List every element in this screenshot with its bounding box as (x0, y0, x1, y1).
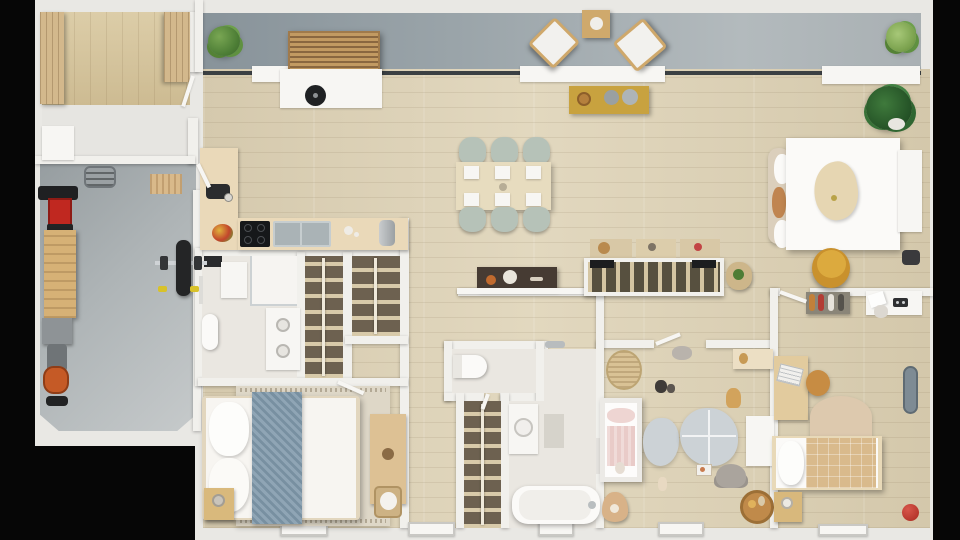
mat-decor-3 (694, 243, 702, 251)
toilet-1 (202, 314, 218, 350)
console-bowl-gray-1 (604, 90, 619, 105)
wall-closet3-left (456, 393, 464, 528)
decor-orange-ball (486, 275, 496, 285)
mat-decor-1 (598, 242, 610, 254)
master-pouf-top (817, 250, 846, 278)
lamp-2 (212, 494, 225, 507)
red-ball (902, 504, 919, 521)
garage-gray-cabinet (42, 318, 72, 344)
book-dot (700, 467, 705, 472)
master-cushion-orange (772, 187, 786, 218)
toaster (379, 220, 395, 246)
placemat-2 (495, 166, 510, 179)
mower-body (43, 366, 69, 394)
shoe-1 (809, 294, 815, 311)
shelf-toy (739, 353, 748, 364)
cushion-button (610, 504, 619, 513)
kitchen-island (280, 69, 382, 108)
crib-pillow-pink (607, 408, 635, 423)
towel-rail-1 (199, 276, 203, 304)
balcony-bench (288, 31, 380, 71)
wall-bedroom2-north (198, 378, 408, 386)
teen-pillow (778, 441, 804, 485)
window-bathroom2 (538, 522, 574, 536)
kitchen-bowl-small (344, 226, 353, 235)
placemat-6 (526, 193, 541, 206)
wall-wc-north (444, 341, 548, 349)
wall-wc-bath2 (536, 341, 544, 401)
double-sink (273, 221, 331, 247)
console-bowl-wood (577, 92, 591, 106)
toilet-2-tank (453, 355, 462, 378)
placemat-3 (526, 166, 541, 179)
decor-stick (530, 277, 543, 281)
teen-lamp (781, 497, 793, 509)
console-bowl-gray-2 (622, 89, 638, 105)
bench-foot-right (190, 286, 199, 292)
island-faucet-dot (313, 93, 318, 98)
vanity-sink (514, 418, 533, 437)
bathtub-inner (519, 490, 591, 520)
window-sill-bedroom (822, 66, 920, 84)
fruit-bowl (212, 224, 233, 242)
bench-foot-left (158, 286, 167, 292)
coffee-cup (224, 193, 233, 202)
master-plant-pot (888, 118, 905, 130)
toy-in-bowl-2 (758, 496, 765, 506)
crib-bunny (615, 462, 625, 474)
burner-4 (257, 236, 265, 244)
entry-wardrobe-left (40, 12, 64, 104)
washer-door (276, 318, 290, 332)
master-dark-object (902, 250, 920, 265)
balcony-plant-right-icon (886, 22, 916, 52)
burner-1 (244, 224, 252, 232)
round-toy-bowl (740, 490, 774, 524)
barbell-plate-right (194, 256, 202, 270)
wall-kids-north-b (706, 340, 776, 348)
porch-bench (42, 126, 74, 160)
plush-elephant (716, 464, 746, 488)
burner-2 (257, 224, 265, 232)
table-centerpiece (499, 183, 507, 191)
sink-divider (300, 222, 302, 246)
toy-giraffe (726, 388, 741, 408)
dining-chair-2 (491, 137, 518, 164)
placemat-1 (464, 166, 479, 179)
kids-table (746, 416, 774, 466)
desk-decor (382, 448, 394, 460)
wall-wc-south-a (444, 393, 484, 401)
tub-faucet (588, 501, 596, 509)
outlet-dot-2 (902, 301, 905, 304)
outlet-dot-1 (896, 301, 899, 304)
wall-closet3-right (501, 393, 509, 528)
shoe-4 (838, 294, 844, 311)
shoe-2 (818, 294, 824, 311)
tool-cart-body (48, 198, 72, 226)
closet1-rail (322, 258, 325, 376)
bath2-mat (544, 414, 564, 448)
window-sill-living (520, 66, 665, 82)
side-table-plate (590, 17, 603, 30)
plush-gray-top (672, 346, 692, 360)
wall-closet2-south (345, 336, 408, 344)
garage-doormat (150, 174, 182, 194)
wall-closet1-closet2 (343, 252, 352, 380)
dining-chair-6 (523, 207, 550, 232)
bath1-white-mat (221, 262, 247, 298)
closet2-rail (374, 258, 377, 334)
floor-plan-render (0, 0, 960, 540)
closet3-rail (481, 404, 484, 525)
window-nursery (658, 522, 704, 536)
crib-blanket-pink (607, 426, 635, 466)
rattan-basket (606, 350, 642, 390)
dining-chair-5 (491, 207, 518, 232)
rack-endcap-right (692, 260, 716, 268)
garage-workbench (44, 230, 76, 318)
divider-mat-2 (636, 239, 676, 258)
bed2-blue-runner (252, 392, 302, 524)
window-bedroom2-b (408, 522, 455, 536)
dining-chair-4 (459, 207, 486, 232)
master-side-panel (898, 150, 922, 232)
burner-3 (244, 236, 252, 244)
placemat-4 (464, 193, 479, 206)
rack-endcap-left (590, 260, 614, 268)
placemat-5 (495, 193, 510, 206)
mat-decor-2 (648, 243, 656, 251)
teen-chair-small (874, 305, 888, 318)
cloud-rug-cross-v (708, 410, 710, 464)
bed2-pillow-a (209, 402, 249, 456)
dryer-door (276, 344, 290, 358)
skateboard (903, 366, 918, 414)
hall-ledge (457, 288, 599, 294)
small-doll (658, 477, 667, 491)
barbell-plate-left (160, 256, 168, 270)
creeper-board (84, 166, 116, 188)
basket-towel (380, 492, 397, 510)
rack-pouf-plant-icon (733, 269, 744, 280)
weight-bench-pad (176, 240, 191, 296)
window-teen (818, 524, 868, 536)
tray-item (831, 195, 837, 201)
shower-head-2 (545, 341, 565, 348)
toy-in-bowl-1 (748, 500, 756, 508)
dining-chair-1 (459, 137, 486, 164)
decor-white-sphere (503, 270, 517, 284)
bathroom2-floor-upper (544, 349, 596, 401)
mower-wheels (46, 396, 68, 406)
teen-blanket-checked (806, 438, 876, 488)
dining-chair-3 (523, 137, 550, 164)
shower-1 (250, 256, 297, 306)
teen-half-rug (810, 396, 872, 438)
balcony-plant-left-icon (208, 26, 240, 56)
wall-balcony-left (195, 0, 203, 72)
wall-kids-north-a (596, 340, 654, 348)
entry-wardrobe-right (164, 12, 190, 82)
toy-cat (655, 380, 667, 393)
shoe-3 (828, 294, 834, 311)
teen-stool (806, 370, 830, 396)
divider-mat-1 (590, 239, 632, 258)
wall-wc-left (444, 341, 452, 401)
